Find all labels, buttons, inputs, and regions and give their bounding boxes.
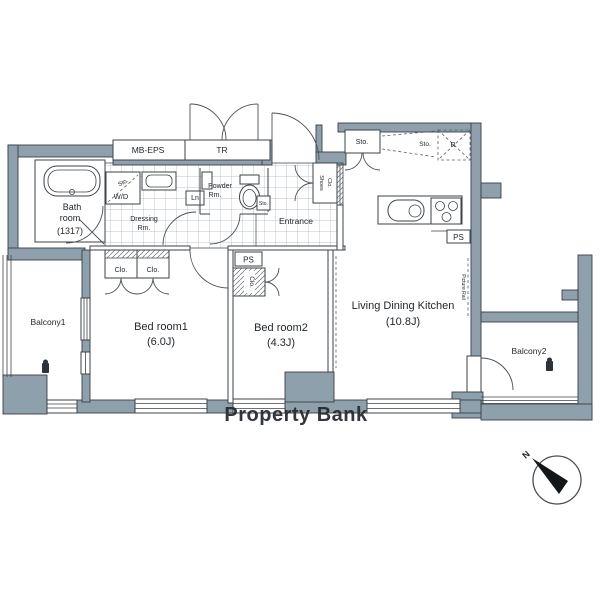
sto-kitchen-label: Sto. xyxy=(356,139,369,146)
toilet-sto-label: Sto. xyxy=(259,201,268,207)
entrance-label: Entrance xyxy=(279,216,313,226)
shoes-closet-wall-hatch xyxy=(337,163,343,205)
picture-rail-label: Picture Rail xyxy=(460,274,466,300)
balcony1-label: Balcony1 xyxy=(31,317,66,327)
shoes-closet-label-1: Shoes xyxy=(318,175,324,191)
bathroom-label-1: Bath xyxy=(63,202,82,212)
fridge-label: R xyxy=(450,142,455,149)
toilet-tank xyxy=(240,175,259,184)
balcony1-door-window xyxy=(81,298,90,340)
closet-vert-label: Clo. xyxy=(248,276,255,288)
floorplan-page: MB-EPS TR Bath room (1317) Sto. W/D Ln D… xyxy=(0,0,600,600)
powder-label-2: Rm. xyxy=(209,192,222,199)
ldk-window xyxy=(367,399,460,413)
watermark: Property Bank xyxy=(224,404,368,426)
closet-a-label: Clo. xyxy=(115,267,128,274)
tr-label: TR xyxy=(216,145,227,155)
wd-label: W/D xyxy=(114,192,129,201)
bedroom2-size: (4.3J) xyxy=(267,337,295,349)
bathroom-label-2: room xyxy=(60,213,81,223)
bedroom1-label: Bed room1 xyxy=(134,321,188,333)
powder-label-1: Powder xyxy=(208,183,232,190)
ps-bedroom2-label: PS xyxy=(243,256,254,265)
ldk-size: (10.8J) xyxy=(386,316,420,328)
balcony2-drain xyxy=(546,358,553,372)
shoes-closet-label-2: Clo. xyxy=(326,178,332,188)
balcony2-label: Balcony2 xyxy=(512,346,547,356)
floorplan-svg: MB-EPS TR Bath room (1317) Sto. W/D Ln D… xyxy=(0,0,600,600)
bathroom: Bath room (1317) xyxy=(35,160,105,244)
kitchen-counter xyxy=(378,196,462,224)
closet-b-label: Clo. xyxy=(147,267,160,274)
mb-eps-label: MB-EPS xyxy=(132,145,165,155)
linen-label: Ln xyxy=(191,195,199,202)
bedroom1-size: (6.0J) xyxy=(147,336,175,348)
shoes-closet xyxy=(313,163,337,203)
sto-open-label: Sto. xyxy=(419,141,431,148)
bathroom-size: (1317) xyxy=(57,226,83,236)
meter-box-trunk-room: MB-EPS TR xyxy=(113,140,270,160)
dressing-label-2: Rm. xyxy=(138,225,151,232)
balcony1-step xyxy=(47,400,77,413)
balcony1-drain xyxy=(42,360,49,374)
ldk-label: Living Dining Kitchen xyxy=(352,300,455,312)
dressing-label-1: Dressing xyxy=(130,216,158,223)
bedroom1-window xyxy=(135,399,207,413)
bedroom2-label: Bed room2 xyxy=(254,322,308,334)
ps-kitchen-label: PS xyxy=(453,233,464,242)
